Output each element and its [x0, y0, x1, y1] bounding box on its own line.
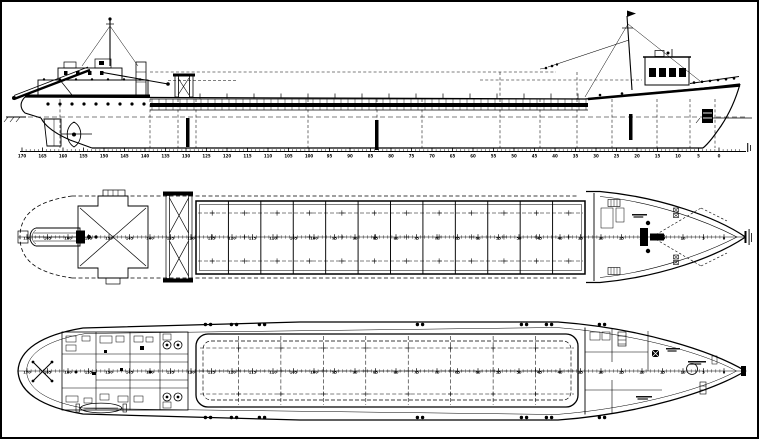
frame-label: 60 — [475, 236, 481, 240]
gantry-crane-profile-shape — [173, 74, 195, 77]
bridge-superstructure-shape — [667, 52, 670, 55]
frame-label: 60 — [470, 154, 476, 159]
ga-drawing-svg: 1701651601551501451401351301251201151101… — [0, 0, 760, 440]
frame-label: 100 — [310, 370, 318, 374]
frame-label: 165 — [44, 236, 52, 240]
frame-label: 140 — [146, 236, 154, 240]
deck-bollard-pairs-shape — [603, 416, 606, 419]
frame-label: 50 — [516, 370, 522, 374]
frame-label: 25 — [619, 370, 625, 374]
forecastle-bulwark-shape — [725, 78, 728, 81]
deck-bollard-pairs-shape — [525, 416, 528, 419]
draft-mark-bars-shape — [186, 118, 190, 147]
illegible-labels-shape — [636, 396, 652, 398]
frame-label: 30 — [593, 154, 599, 159]
frame-label: 0 — [718, 154, 721, 159]
frame-label: 170 — [23, 370, 31, 374]
illegible-label-shape — [634, 216, 644, 217]
frame-label: 85 — [373, 236, 379, 240]
frame-label: 130 — [187, 370, 195, 374]
porthole-row-shape — [118, 102, 121, 105]
mooring-winches-shape — [166, 396, 169, 399]
frame-label: 55 — [496, 370, 502, 374]
frame-label: 45 — [537, 236, 543, 240]
stern-discharge-boom-shape — [12, 96, 16, 100]
accommodation-rooms-shape — [140, 346, 144, 350]
frame-label: 150 — [105, 236, 113, 240]
frame-label: 155 — [85, 236, 93, 240]
porthole-row-shape — [130, 102, 133, 105]
frame-label: 20 — [639, 236, 645, 240]
frame-label: 170 — [23, 236, 31, 240]
deck-bollard-pairs-shape — [598, 416, 601, 419]
frame-label: 70 — [429, 154, 435, 159]
mooring-winches-shape — [166, 344, 169, 347]
frame-label: 20 — [634, 154, 640, 159]
deck-bollard-pairs-shape — [550, 323, 553, 326]
frame-label: 170 — [18, 154, 27, 159]
frame-label: 60 — [475, 370, 481, 374]
frame-label: 15 — [660, 370, 666, 374]
frame-label: 105 — [284, 154, 293, 159]
frame-label: 150 — [105, 370, 113, 374]
porthole-row-shape — [91, 78, 93, 80]
deck-bollard-pairs-shape — [235, 323, 238, 326]
frame-label: 115 — [243, 154, 252, 159]
frame-label: 45 — [532, 154, 538, 159]
accommodation-rooms-shape — [104, 350, 107, 353]
frame-label: 110 — [269, 370, 277, 374]
mooring-winches-shape — [177, 396, 180, 399]
steering-gear-cross-shape — [51, 361, 54, 364]
frame-label: 80 — [388, 154, 394, 159]
illegible-labels-shape — [638, 398, 648, 399]
frame-label: 40 — [557, 236, 563, 240]
forecastle-bulwark-shape — [717, 79, 720, 82]
frame-label: 155 — [85, 370, 93, 374]
frame-label: 95 — [332, 236, 338, 240]
frame-label: 120 — [223, 154, 232, 159]
porthole-row-shape — [107, 78, 109, 80]
scale-end-mark-shape — [750, 145, 751, 151]
anchor-icon-shape — [702, 109, 713, 123]
deck-bollard-pairs-shape — [520, 416, 523, 419]
deck-bollard-pairs-shape — [421, 323, 424, 326]
frame-label: 105 — [290, 370, 298, 374]
frame-label: 10 — [680, 236, 686, 240]
frame-label: 140 — [146, 370, 154, 374]
porthole-row-shape — [46, 102, 49, 105]
deck-bollard-pairs-shape — [204, 323, 207, 326]
illegible-labels-shape — [688, 361, 706, 363]
frame-label: 160 — [59, 154, 68, 159]
frame-label: 65 — [455, 370, 461, 374]
steering-gear-cross-shape — [51, 380, 54, 383]
frame-label: 55 — [496, 236, 502, 240]
frame-label: 35 — [578, 370, 584, 374]
frame-label: 115 — [249, 236, 257, 240]
gantry-crane-plan-shape — [163, 192, 193, 196]
ship-general-arrangement-drawing: 1701651601551501451401351301251201151101… — [0, 0, 760, 440]
propeller-icon-shape — [72, 133, 76, 137]
aft-superstructure-shape — [64, 71, 68, 75]
deck-bollard-pairs-shape — [603, 323, 606, 326]
frame-label: 5 — [697, 154, 700, 159]
porthole-row-shape — [75, 78, 77, 80]
forecastle-bulwark-shape — [733, 77, 736, 80]
deck-bollard-pairs-shape — [230, 323, 233, 326]
draft-mark-bars-shape — [375, 120, 379, 150]
deck-bollard-pairs-shape — [263, 323, 266, 326]
illegible-label-shape — [632, 214, 647, 216]
deck-bollard-pairs-shape — [550, 416, 553, 419]
frame-label: 75 — [409, 154, 415, 159]
deck-bollard-pairs-shape — [209, 323, 212, 326]
frame-label: 25 — [614, 154, 620, 159]
frame-label: 30 — [598, 236, 604, 240]
frame-label: 40 — [552, 154, 558, 159]
forecastle-bulwark-shape — [701, 80, 704, 83]
frame-label: 50 — [516, 236, 522, 240]
deck-bollard-pairs-shape — [520, 323, 523, 326]
anchor-icon — [702, 109, 713, 123]
frame-label: 150 — [100, 154, 109, 159]
frame-label: 135 — [161, 154, 170, 159]
frame-label: 25 — [619, 236, 625, 240]
frame-label: 65 — [455, 236, 461, 240]
foremast-shape — [551, 65, 554, 68]
illegible-labels-shape — [690, 363, 702, 364]
frame-label: 65 — [450, 154, 456, 159]
frame-label: 105 — [290, 236, 298, 240]
bridge-superstructure-shape — [649, 68, 656, 77]
frame-label: 30 — [598, 370, 604, 374]
porthole-row-shape — [142, 102, 145, 105]
frame-label: 15 — [655, 154, 661, 159]
aft-mast-shape — [108, 17, 111, 20]
deck-bollard-pairs-shape — [204, 416, 207, 419]
forecastle-bulwark-shape — [599, 94, 602, 97]
frame-label: 110 — [269, 236, 277, 240]
deck-bollard-pairs-shape — [258, 323, 261, 326]
frame-label: 145 — [126, 236, 134, 240]
frame-label: 40 — [557, 370, 563, 374]
deck-bollard-pairs-shape — [416, 323, 419, 326]
frame-label: 100 — [305, 154, 314, 159]
frame-label: 165 — [44, 370, 52, 374]
frame-label: 100 — [310, 236, 318, 240]
forecastle-bulwark-shape — [709, 80, 712, 83]
frame-label: 10 — [675, 154, 681, 159]
illegible-labels-shape — [666, 348, 680, 350]
frame-label: 80 — [393, 236, 399, 240]
porthole-row-shape — [94, 102, 97, 105]
frame-label: 15 — [660, 236, 666, 240]
frame-label: 35 — [578, 236, 584, 240]
mooring-winches-shape — [177, 344, 180, 347]
illegible-labels-shape — [668, 350, 677, 351]
frame-label: 140 — [141, 154, 150, 159]
illegible-label-shape — [749, 229, 750, 245]
frame-label: 95 — [332, 370, 338, 374]
frame-label: 75 — [414, 370, 420, 374]
deck-bollard-pairs-shape — [416, 416, 419, 419]
porthole-row-shape — [43, 78, 45, 80]
steering-gear-cross-shape — [32, 380, 35, 383]
frame-label: 95 — [327, 154, 333, 159]
frame-label: 70 — [434, 236, 440, 240]
deck-bollard-pairs-shape — [263, 416, 266, 419]
illegible-label-shape — [751, 233, 752, 242]
frame-label: 165 — [38, 154, 47, 159]
frame-label: 160 — [64, 370, 72, 374]
forecastle-bulwark-shape — [621, 92, 624, 95]
porthole-row-shape — [70, 102, 73, 105]
frame-label: 50 — [511, 154, 517, 159]
frame-label: 45 — [537, 370, 543, 374]
frame-label: 90 — [352, 370, 358, 374]
steering-gear-cross-shape — [32, 361, 35, 364]
bridge-superstructure-shape — [669, 68, 676, 77]
windlass-machinery-shape — [646, 249, 650, 253]
bridge-superstructure-shape — [659, 68, 666, 77]
frame-label: 85 — [373, 370, 379, 374]
frame-label: 135 — [167, 236, 175, 240]
frame-label: 160 — [64, 236, 72, 240]
frame-label: 135 — [167, 370, 175, 374]
deck-bollard-pairs-shape — [545, 416, 548, 419]
frame-label: 125 — [202, 154, 211, 159]
frame-label: 145 — [120, 154, 129, 159]
frame-label: 125 — [208, 370, 216, 374]
deck-bollard-pairs-shape — [525, 323, 528, 326]
stern-discharge-boom-shape — [166, 82, 170, 86]
porthole-row-shape — [106, 102, 109, 105]
scale-end-mark-shape — [747, 143, 748, 152]
deck-bollard-pairs-shape — [598, 323, 601, 326]
frame-label: 20 — [639, 370, 645, 374]
frame-label: 55 — [491, 154, 497, 159]
deck-bollard-pairs-shape — [235, 416, 238, 419]
deck-bollard-pairs-shape — [421, 416, 424, 419]
frame-label: 85 — [368, 154, 374, 159]
deck-bollard-pairs-shape — [258, 416, 261, 419]
frame-label: 125 — [208, 236, 216, 240]
porthole-row-shape — [123, 78, 125, 80]
frame-label: 115 — [249, 370, 257, 374]
frame-label: 75 — [414, 236, 420, 240]
frame-label: 90 — [347, 154, 353, 159]
draft-mark-bars-shape — [629, 114, 633, 140]
deck-bollard-pairs-shape — [209, 416, 212, 419]
frame-label: 120 — [228, 370, 236, 374]
porthole-row-shape — [82, 102, 85, 105]
deck-bollard-pairs-shape — [230, 416, 233, 419]
frame-label: 80 — [393, 370, 399, 374]
frame-label: 35 — [573, 154, 579, 159]
forecastle-bulwark-shape — [693, 81, 696, 84]
frame-label: 120 — [228, 236, 236, 240]
foremast-shape — [556, 63, 558, 65]
deck-bollard-pairs-shape — [545, 323, 548, 326]
frame-label: 130 — [182, 154, 191, 159]
frame-label: 145 — [126, 370, 134, 374]
frame-label: 130 — [187, 236, 195, 240]
frame-label: 90 — [352, 236, 358, 240]
frame-label: 10 — [680, 370, 686, 374]
frame-label: 155 — [79, 154, 88, 159]
frame-label: 70 — [434, 370, 440, 374]
aft-superstructure-shape — [99, 61, 104, 65]
windlass-machinery-shape — [646, 221, 650, 225]
gantry-crane-plan-shape — [163, 279, 193, 283]
frame-label: 110 — [264, 154, 273, 159]
